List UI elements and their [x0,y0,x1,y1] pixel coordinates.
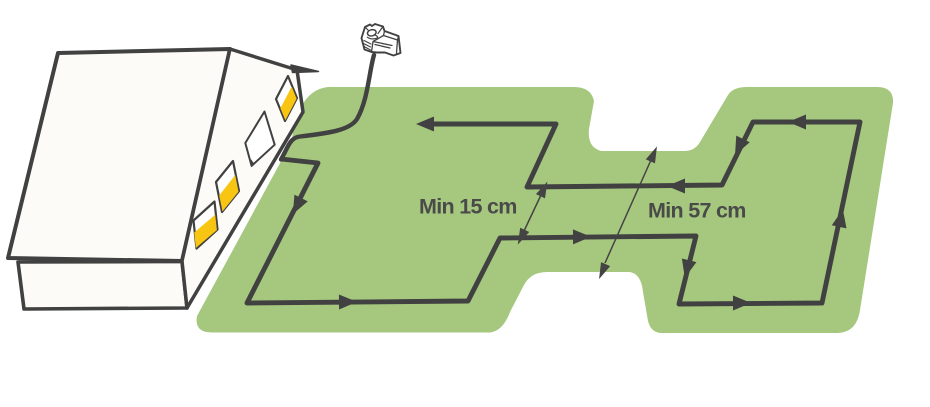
svg-text:Min 15 cm: Min 15 cm [419,195,517,219]
svg-text:Min 57 cm: Min 57 cm [648,199,746,223]
